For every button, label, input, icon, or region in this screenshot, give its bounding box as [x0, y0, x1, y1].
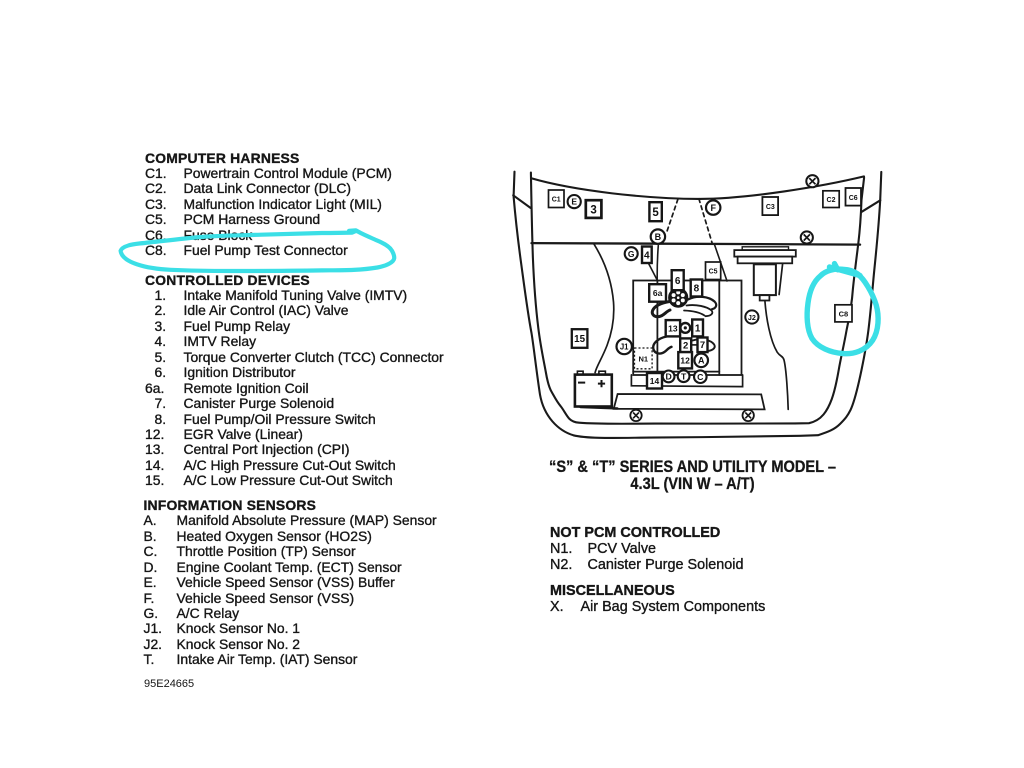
- svg-text:N1: N1: [639, 355, 649, 364]
- svg-text:J1: J1: [620, 343, 629, 352]
- svg-text:3: 3: [590, 205, 596, 217]
- svg-text:G: G: [628, 249, 635, 259]
- svg-text:F: F: [710, 203, 716, 213]
- svg-text:1: 1: [695, 323, 701, 334]
- svg-text:C8: C8: [839, 309, 849, 318]
- svg-text:C5: C5: [709, 268, 718, 275]
- svg-text:6: 6: [675, 276, 681, 287]
- svg-text:5: 5: [652, 207, 659, 219]
- svg-text:14: 14: [650, 376, 660, 386]
- svg-text:B: B: [655, 232, 662, 242]
- svg-text:C6: C6: [849, 195, 858, 202]
- svg-text:E: E: [571, 197, 577, 207]
- svg-text:T: T: [681, 371, 687, 381]
- svg-text:C3: C3: [766, 204, 775, 211]
- svg-text:15: 15: [574, 334, 585, 345]
- svg-text:8: 8: [694, 284, 700, 295]
- svg-text:A: A: [698, 356, 705, 366]
- svg-text:12: 12: [680, 356, 690, 366]
- svg-text:C: C: [697, 372, 704, 382]
- svg-text:C1: C1: [552, 196, 561, 203]
- svg-text:6a: 6a: [653, 288, 663, 298]
- svg-text:4: 4: [644, 251, 650, 262]
- svg-text:13: 13: [668, 324, 678, 334]
- svg-text:C2: C2: [827, 197, 836, 204]
- svg-text:2: 2: [683, 341, 688, 352]
- svg-text:J2: J2: [748, 313, 756, 322]
- svg-text:D: D: [665, 372, 671, 382]
- svg-text:7: 7: [700, 340, 705, 351]
